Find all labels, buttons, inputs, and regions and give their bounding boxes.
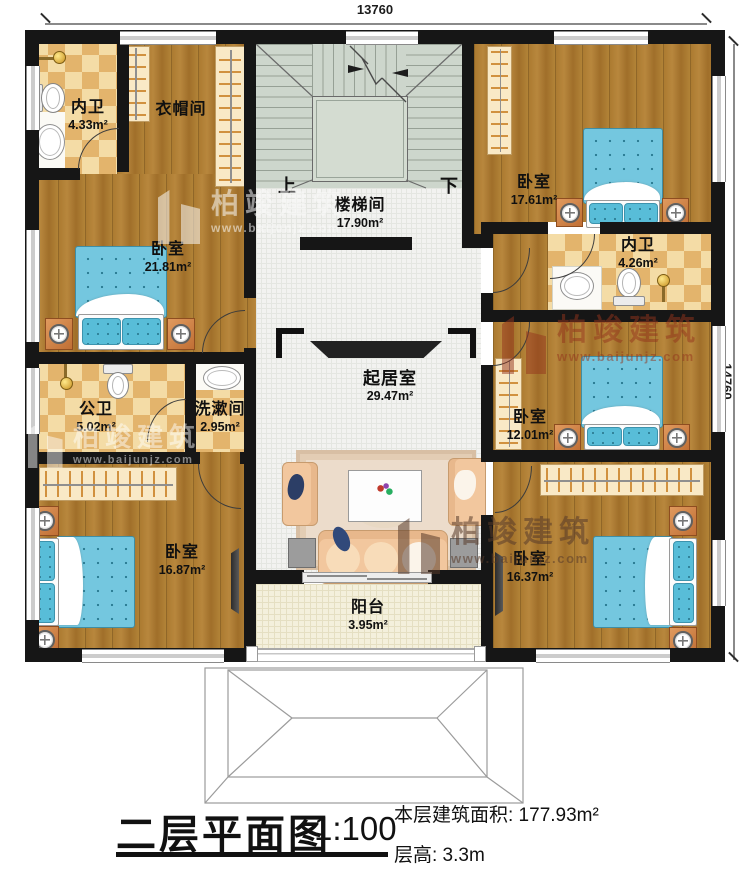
- room-label-bath-right: 内卫 4.26m²: [594, 236, 682, 272]
- interior-wall: [462, 234, 493, 248]
- room-label-closet: 衣帽间: [134, 100, 228, 120]
- title-underline: [116, 852, 388, 857]
- bed-sheet: [645, 537, 671, 625]
- railing-post: [474, 646, 486, 662]
- dimension-tick: [40, 13, 51, 24]
- bed-sheet: [57, 537, 83, 625]
- sink: [203, 366, 241, 390]
- window: [82, 649, 224, 663]
- window: [120, 31, 216, 45]
- window: [554, 31, 648, 45]
- window: [26, 368, 40, 434]
- break-arrow-icon: [348, 65, 364, 73]
- interior-wall: [244, 44, 256, 188]
- dimension-top: 13760: [330, 2, 420, 17]
- room-label-living: 起居室 29.47m²: [333, 368, 447, 405]
- room-label-balcony: 阳台 3.95m²: [327, 598, 409, 634]
- room-label-bedroom-br: 卧室 16.37m²: [482, 550, 578, 586]
- shower-head-icon: [657, 274, 670, 287]
- break-arrow-icon: [392, 69, 408, 77]
- interior-wall: [244, 188, 256, 298]
- wardrobe: [39, 467, 177, 501]
- interior-wall: [25, 168, 80, 180]
- dimension-tick: [701, 13, 712, 24]
- roof-outline: [200, 662, 530, 807]
- wardrobe: [487, 46, 512, 155]
- room-label-public-bath: 公卫 5.02m²: [52, 400, 140, 436]
- interior-wall: [600, 222, 711, 234]
- wardrobe: [540, 464, 704, 496]
- table-decor: [374, 482, 396, 498]
- nightstand: [663, 424, 690, 452]
- interior-wall: [25, 452, 200, 464]
- nightstand: [167, 318, 195, 350]
- window: [712, 540, 726, 606]
- floor-height-label: 层高: 3.3m: [394, 840, 485, 867]
- balcony-railing: [250, 648, 481, 662]
- window: [536, 649, 670, 663]
- bed-pillow: [122, 318, 161, 345]
- sofa-group: [282, 430, 482, 590]
- floor-plan-canvas: 13760 14760: [0, 0, 750, 881]
- room-label-bedroom-mr: 卧室 12.01m²: [484, 408, 576, 444]
- interior-wall: [481, 222, 548, 234]
- sofa-cushion: [364, 542, 398, 576]
- tv-icon: [310, 341, 442, 358]
- interior-wall: [300, 237, 412, 250]
- interior-wall: [462, 44, 474, 248]
- bed-pillow: [624, 203, 658, 224]
- window: [712, 76, 726, 182]
- interior-wall: [481, 310, 711, 322]
- window: [712, 326, 726, 432]
- room-label-bedroom-left: 卧室 21.81m²: [120, 240, 216, 276]
- room-label-washroom: 洗漱间 2.95m²: [168, 400, 272, 436]
- side-table: [450, 538, 478, 568]
- bed-pillow: [82, 318, 121, 345]
- stair-down-label: 下: [440, 172, 458, 198]
- interior-wall: [428, 570, 481, 584]
- shower-wand: [662, 286, 665, 302]
- dimension-line-top: [45, 23, 707, 25]
- plan-scale: 1:100: [314, 810, 397, 848]
- room-label-bedroom-tr: 卧室 17.61m²: [488, 173, 580, 209]
- interior-wall: [25, 352, 245, 364]
- nightstand: [669, 506, 697, 536]
- room-label-bedroom-bl: 卧室 16.87m²: [130, 543, 234, 579]
- tv-wall: [276, 328, 476, 364]
- railing-post: [246, 646, 258, 662]
- window: [26, 66, 40, 130]
- nightstand: [45, 318, 73, 350]
- shower-head-icon: [60, 377, 73, 390]
- bed-pillow: [589, 203, 623, 224]
- bed-pillow: [587, 427, 622, 446]
- side-table: [288, 538, 316, 568]
- window: [26, 508, 40, 620]
- window: [346, 31, 418, 45]
- window: [26, 230, 40, 342]
- interior-wall: [481, 450, 711, 462]
- interior-wall: [244, 348, 256, 364]
- bed-pillow: [623, 427, 658, 446]
- room-label-bath-tl: 内卫 4.33m²: [44, 98, 132, 134]
- shower-head-icon: [53, 51, 66, 64]
- bed-pillow: [673, 541, 694, 581]
- sliding-door: [302, 572, 432, 583]
- interior-wall: [256, 570, 304, 584]
- bed-pillow: [673, 583, 694, 623]
- interior-wall: [481, 515, 493, 662]
- stair-up-label: 上: [278, 172, 296, 198]
- room-label-stairwell: 楼梯间 17.90m²: [308, 196, 412, 232]
- floor-area-label: 本层建筑面积: 177.93m²: [394, 800, 599, 827]
